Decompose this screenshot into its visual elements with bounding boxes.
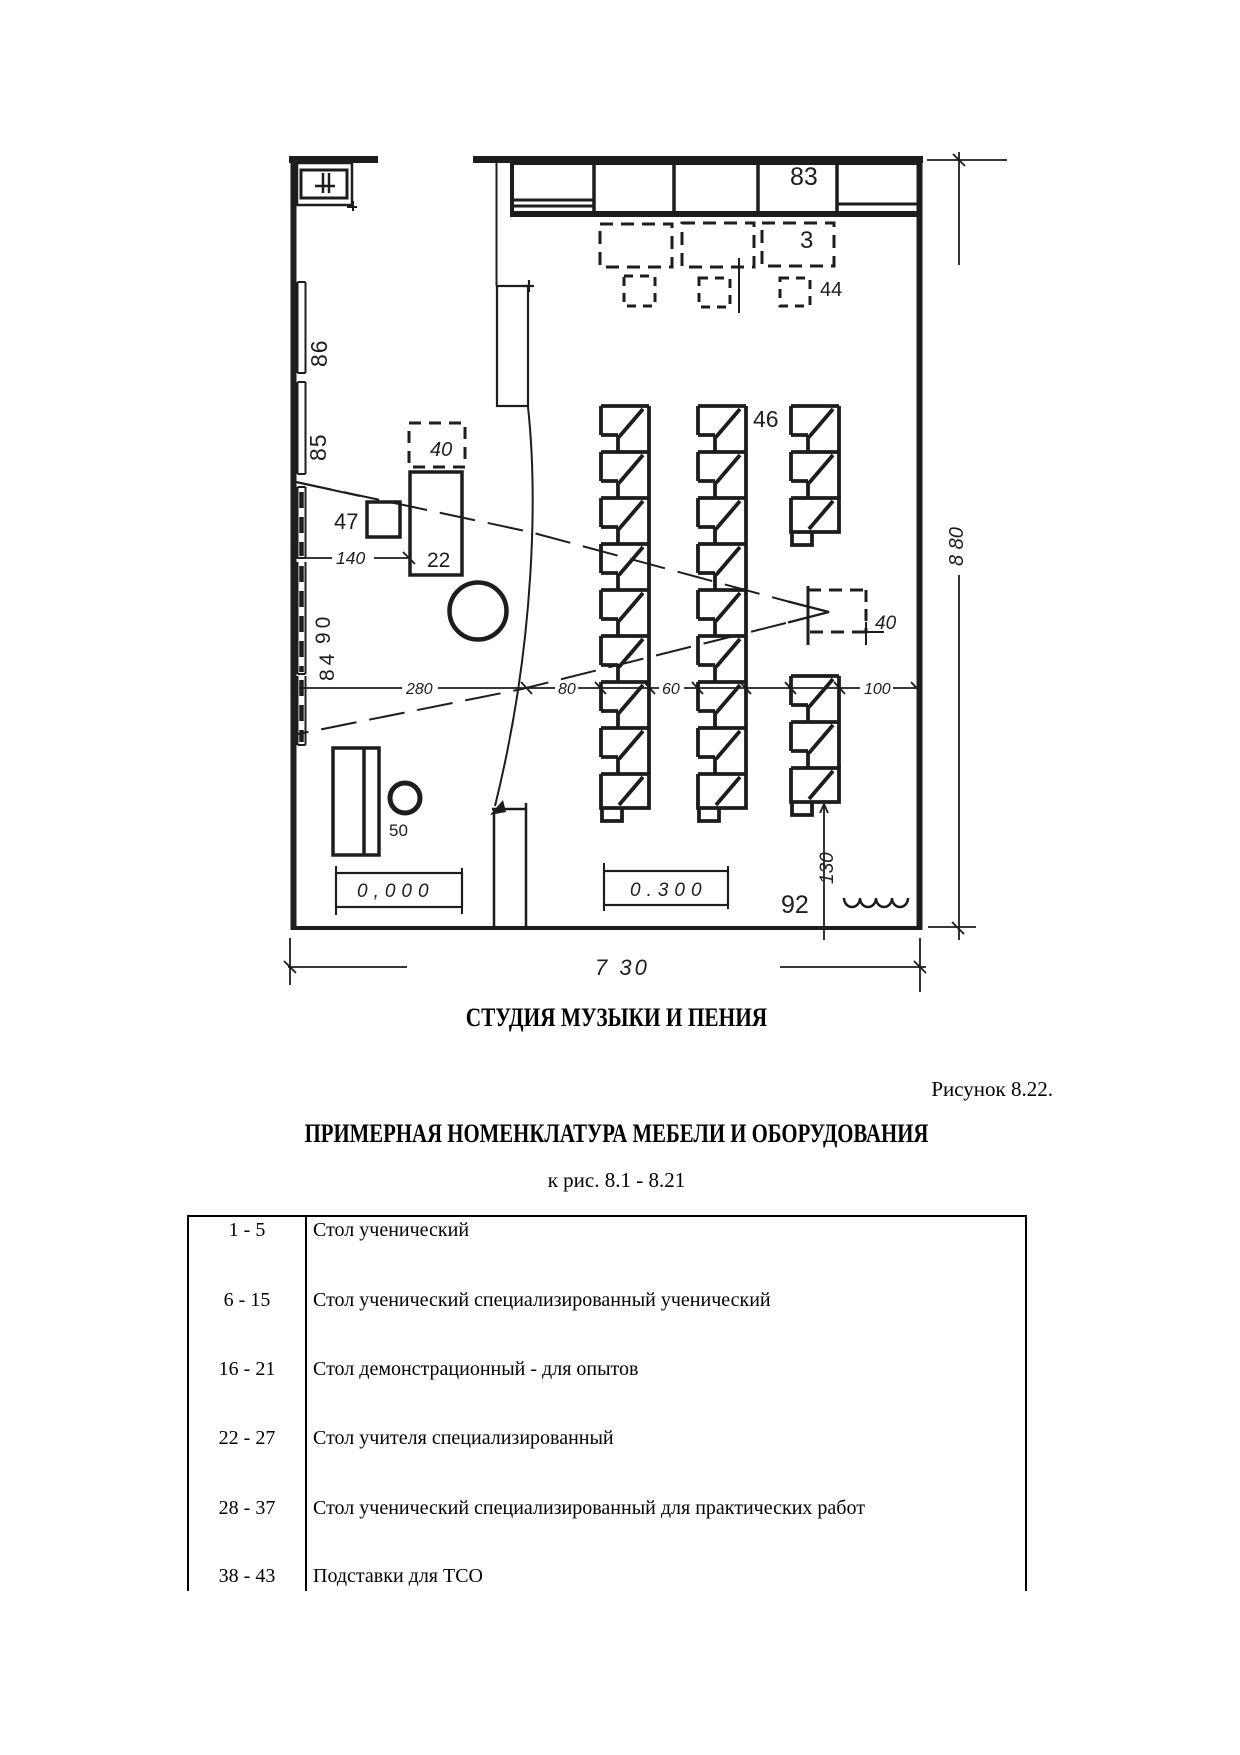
svg-text:50: 50 — [389, 821, 408, 840]
svg-text:0.300: 0.300 — [630, 880, 708, 901]
svg-text:84: 84 — [316, 650, 339, 681]
svg-text:130: 130 — [817, 852, 838, 884]
svg-text:40: 40 — [430, 439, 452, 461]
svg-text:92: 92 — [781, 891, 809, 919]
svg-text:90: 90 — [312, 613, 335, 644]
svg-text:46: 46 — [753, 406, 779, 432]
svg-text:83: 83 — [790, 163, 818, 191]
svg-text:47: 47 — [334, 509, 358, 534]
svg-text:44: 44 — [820, 279, 842, 301]
svg-text:80: 80 — [558, 681, 576, 698]
svg-text:8 80: 8 80 — [946, 527, 968, 566]
svg-text:85: 85 — [305, 433, 331, 461]
svg-text:86: 86 — [306, 339, 332, 367]
svg-text:280: 280 — [405, 681, 433, 698]
svg-text:22: 22 — [427, 549, 450, 572]
svg-text:40: 40 — [875, 613, 897, 634]
svg-text:60: 60 — [662, 681, 680, 698]
svg-text:140: 140 — [336, 548, 365, 568]
svg-text:3: 3 — [800, 227, 813, 254]
svg-text:7 30: 7 30 — [595, 955, 650, 980]
svg-text:100: 100 — [864, 681, 891, 698]
svg-text:0,000: 0,000 — [357, 881, 435, 902]
